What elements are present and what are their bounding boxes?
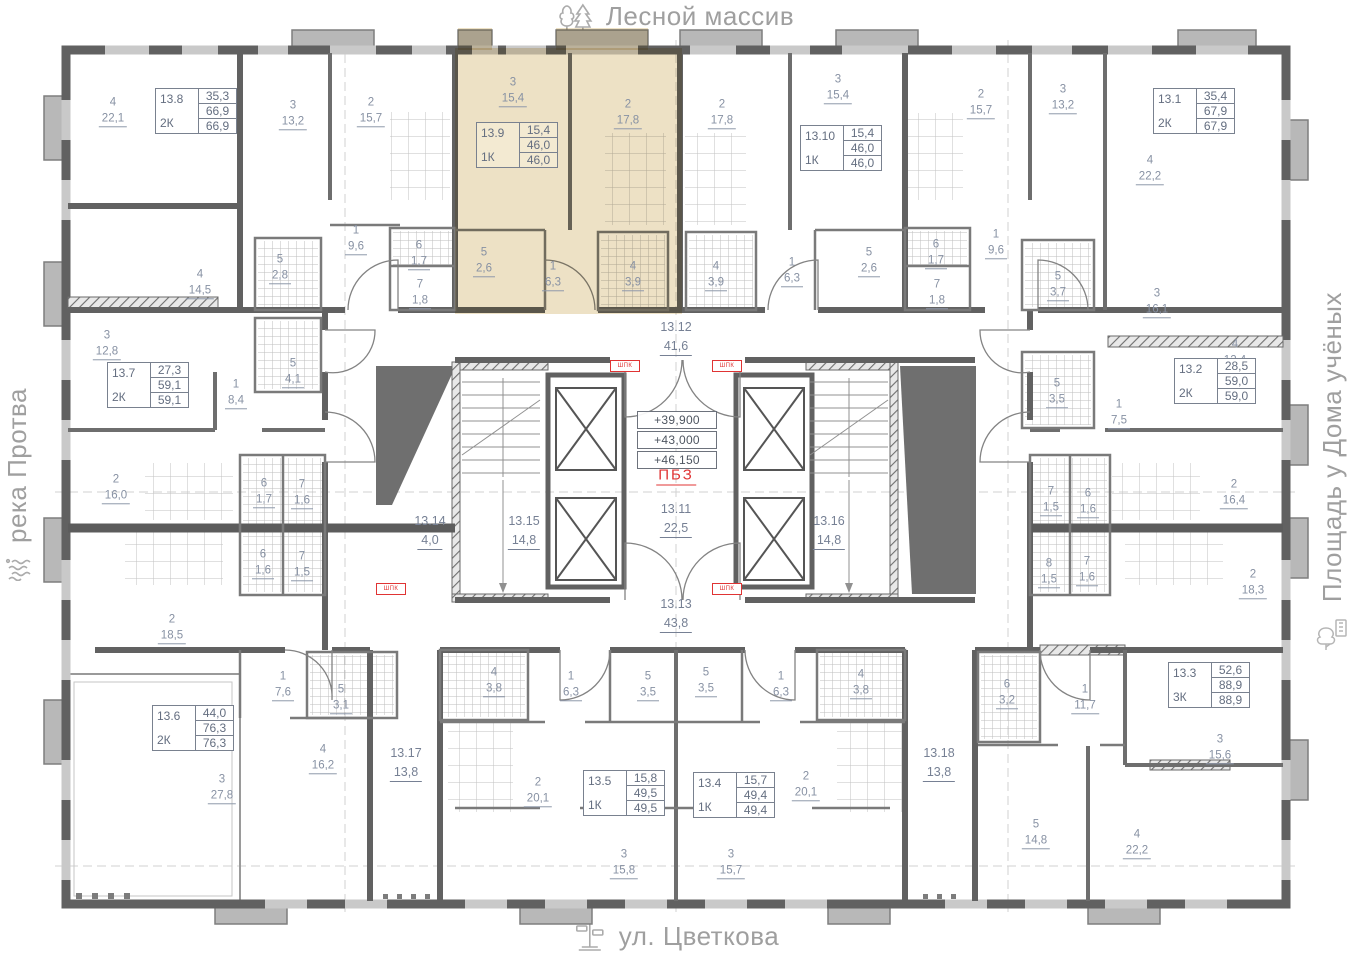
room-label: 1 9,6 (345, 224, 367, 255)
room-number: 4 (705, 260, 727, 273)
room-label: 1 6,3 (770, 670, 792, 701)
corridor-area: 4,0 (417, 533, 442, 550)
room-label: 6 1,7 (925, 238, 947, 269)
apartment-area: 49,4 (737, 788, 774, 803)
room-area: 15,7 (357, 113, 385, 128)
apartment-living-area: 15,8 (627, 771, 664, 786)
apartment-area: 49,5 (627, 786, 664, 801)
room-area: 11,7 (1071, 700, 1099, 715)
room-label: 7 1,5 (291, 550, 313, 581)
room-number: 1 (770, 670, 792, 683)
room-area: 15,4 (824, 90, 852, 105)
room-area: 6,3 (542, 277, 564, 292)
room-area: 18,5 (158, 630, 186, 645)
fire-hose-cabinet-badge: ШПК (610, 360, 640, 372)
apartment-living-area: 15,4 (844, 126, 881, 141)
room-area: 1,5 (1038, 574, 1060, 589)
room-area: 1,7 (925, 255, 947, 270)
corridor-id: 13.16 (813, 514, 845, 529)
room-label: 3 15,7 (717, 848, 745, 879)
room-number: 3 (499, 76, 527, 89)
room-area: 14,5 (186, 285, 214, 300)
room-label: 1 11,7 (1071, 683, 1099, 714)
room-label: 4 22,2 (1123, 828, 1151, 859)
room-area: 3,8 (483, 683, 505, 698)
room-label: 3 16,1 (1143, 287, 1171, 318)
apartment-living-area: 27,3 (151, 363, 188, 378)
room-area: 3,8 (850, 685, 872, 700)
room-area: 1,8 (409, 295, 431, 310)
fire-hose-cabinet-badge: ШПК (376, 583, 406, 595)
apartment-total-area: 66,9 (199, 119, 236, 133)
room-area: 16,2 (309, 760, 337, 775)
apartment-area: 76,3 (196, 721, 233, 736)
room-label: 2 18,5 (158, 613, 186, 644)
room-label: 6 3,2 (996, 678, 1018, 709)
apartment-total-area: 46,0 (520, 153, 557, 167)
corridor-id: 13.14 (414, 514, 445, 529)
room-label: 1 8,4 (225, 378, 247, 409)
fire-hose-cabinet-badge: ШПК (712, 360, 742, 372)
apartment-area: 66,9 (199, 104, 236, 119)
room-area: 2,8 (269, 270, 291, 285)
room-number: 2 (1220, 478, 1248, 491)
room-area: 15,7 (967, 105, 995, 120)
room-label: 7 1,8 (926, 278, 948, 309)
selected-apartment-balcony-highlight (556, 28, 648, 50)
room-label: 1 6,3 (542, 260, 564, 291)
room-number: 1 (560, 670, 582, 683)
room-label: 5 3,5 (637, 670, 659, 701)
room-number: 3 (1206, 733, 1234, 746)
apartment-total-area: 59,0 (1218, 389, 1255, 403)
apartment-id: 13.5 (588, 774, 624, 788)
room-label: 6 1,6 (1077, 487, 1099, 518)
room-label: 4 22,2 (1136, 154, 1164, 185)
room-area: 1,6 (252, 565, 274, 580)
room-area: 15,6 (1206, 750, 1234, 765)
room-label: 2 17,8 (614, 98, 642, 129)
room-label: 4 22,1 (99, 96, 127, 127)
corridor-id: 13.11 (660, 502, 692, 517)
room-number: 6 (1077, 487, 1099, 500)
apartment-info-table[interactable]: 13.6 2К 44,0 76,3 76,3 (152, 705, 234, 751)
apartment-total-area: 88,9 (1212, 693, 1249, 707)
apartment-type: 2К (1158, 116, 1194, 130)
room-label: 2 16,0 (102, 473, 130, 504)
corridor-area: 14,8 (508, 533, 540, 550)
room-label: 2 20,1 (524, 776, 552, 807)
parapet-dots (383, 894, 956, 899)
room-label: 2 15,7 (357, 96, 385, 127)
corridor-area: 13,8 (390, 765, 422, 782)
apartment-id: 13.4 (698, 776, 734, 790)
apartment-living-area: 44,0 (196, 706, 233, 721)
apartment-type: 2К (1179, 386, 1215, 400)
room-number: 5 (330, 683, 352, 696)
apartment-type: 2К (160, 116, 196, 130)
corridor-label: 13.12 41,6 (660, 320, 692, 356)
room-area: 22,1 (99, 113, 127, 128)
room-label: 3 15,4 (824, 73, 852, 104)
corridor-area: 13,8 (923, 765, 955, 782)
room-number: 5 (473, 246, 495, 259)
room-number: 7 (291, 478, 313, 491)
room-number: 6 (253, 477, 275, 490)
room-area: 7,5 (1108, 415, 1130, 430)
room-number: 2 (158, 613, 186, 626)
room-area: 22,2 (1123, 845, 1151, 860)
corridor-label: 13.18 13,8 (923, 746, 955, 782)
corridor-id: 13.12 (660, 320, 692, 335)
room-label: 4 14,5 (186, 268, 214, 299)
room-area: 2,6 (473, 263, 495, 278)
room-label: 5 14,8 (1022, 818, 1050, 849)
room-number: 3 (717, 848, 745, 861)
room-number: 5 (1046, 377, 1068, 390)
apartment-type: 1К (481, 150, 517, 164)
room-label: 3 12,8 (93, 329, 121, 360)
room-label: 1 9,6 (985, 228, 1007, 259)
room-area: 27,8 (208, 790, 236, 805)
room-area: 15,8 (610, 865, 638, 880)
room-label: 2 18,3 (1239, 568, 1267, 599)
room-number: 4 (309, 743, 337, 756)
room-number: 7 (1076, 555, 1098, 568)
apartment-id: 13.8 (160, 92, 196, 106)
apartment-total-area: 59,1 (151, 393, 188, 407)
apartment-area: 59,1 (151, 378, 188, 393)
room-number: 5 (1047, 270, 1069, 283)
corridor-label: 13.17 13,8 (390, 746, 422, 782)
room-area: 17,8 (614, 115, 642, 130)
room-label: 3 27,8 (208, 773, 236, 804)
corridor-label: 13.11 22,5 (660, 502, 692, 538)
selected-apartment-balcony-highlight (458, 28, 492, 50)
room-area: 7,6 (272, 687, 294, 702)
room-area: 20,1 (792, 787, 820, 802)
staircase-right (810, 378, 888, 593)
room-label: 6 1,7 (408, 239, 430, 270)
room-area: 16,4 (1220, 495, 1248, 510)
room-area: 15,7 (717, 865, 745, 880)
room-area: 12,8 (93, 346, 121, 361)
room-number: 4 (483, 666, 505, 679)
room-number: 3 (208, 773, 236, 786)
room-number: 1 (985, 228, 1007, 241)
room-number: 1 (345, 224, 367, 237)
room-number: 1 (542, 260, 564, 273)
corridor-id: 13.15 (508, 514, 540, 529)
room-label: 2 17,8 (708, 98, 736, 129)
apartment-type: 2К (112, 390, 148, 404)
room-area: 17,8 (708, 115, 736, 130)
room-number: 4 (850, 668, 872, 681)
apartment-id: 13.3 (1173, 666, 1209, 680)
staircase-left (462, 378, 540, 593)
room-number: 2 (614, 98, 642, 111)
room-number: 2 (708, 98, 736, 111)
fire-hose-cabinet-label: ШПК (720, 363, 735, 369)
room-number: 5 (858, 246, 880, 259)
room-area: 3,5 (637, 687, 659, 702)
apartment-total-area: 76,3 (196, 736, 233, 750)
corridor-label: 13.16 14,8 (813, 514, 845, 550)
room-number: 7 (1040, 485, 1062, 498)
room-label: 5 3,5 (1046, 377, 1068, 408)
room-number: 3 (824, 73, 852, 86)
room-area: 1,6 (291, 495, 313, 510)
apartment-area: 88,9 (1212, 678, 1249, 693)
room-area: 3,1 (330, 700, 352, 715)
room-area: 9,6 (985, 245, 1007, 260)
room-area: 16,1 (1143, 304, 1171, 319)
room-area: 3,5 (695, 683, 717, 698)
room-label: 3 13,2 (279, 99, 307, 130)
room-number: 7 (291, 550, 313, 563)
room-number: 5 (695, 666, 717, 679)
corridor-area: 14,8 (813, 533, 845, 550)
room-label: 7 1,6 (1076, 555, 1098, 586)
room-label: 1 6,3 (560, 670, 582, 701)
room-label: 3 15,8 (610, 848, 638, 879)
apartment-info-table[interactable]: 13.10 1К 15,4 46,0 46,0 (800, 125, 882, 171)
room-number: 1 (1071, 683, 1099, 696)
apartment-info-table[interactable]: 13.8 2К 35,3 66,9 66,9 (155, 88, 237, 134)
corridor-id: 13.13 (660, 597, 692, 612)
apartment-living-area: 15,7 (737, 773, 774, 788)
apartment-id: 13.2 (1179, 362, 1215, 376)
room-area: 1,6 (1076, 572, 1098, 587)
room-area: 14,8 (1022, 835, 1050, 850)
apartment-info-table[interactable]: 13.5 1К 15,8 49,5 49,5 (583, 770, 665, 816)
apartment-type: 1К (698, 800, 734, 814)
room-label: 5 3,5 (695, 666, 717, 697)
room-area: 3,7 (1047, 287, 1069, 302)
room-area: 18,3 (1239, 585, 1267, 600)
apartment-living-area: 15,4 (520, 123, 557, 138)
corridor-area: 41,6 (660, 339, 692, 356)
apartment-info-table[interactable]: 13.4 1К 15,7 49,4 49,4 (693, 772, 775, 818)
floor-plan: 4 22,1 3 13,2 2 15,7 3 15,4 2 17,8 (0, 0, 1350, 953)
room-number: 2 (967, 88, 995, 101)
room-area: 1,8 (926, 295, 948, 310)
apartment-type: 1К (805, 153, 841, 167)
room-label: 7 1,5 (1040, 485, 1062, 516)
room-number: 3 (1143, 287, 1171, 300)
apartment-info-table[interactable]: 13.2 2К 28,5 59,0 59,0 (1174, 358, 1256, 404)
room-area: 6,3 (770, 687, 792, 702)
room-area: 4,1 (282, 374, 304, 389)
room-area: 6,3 (560, 687, 582, 702)
room-number: 6 (996, 678, 1018, 691)
room-number: 1 (781, 256, 803, 269)
room-number: 1 (1108, 398, 1130, 411)
room-label: 5 2,6 (473, 246, 495, 277)
room-number: 5 (282, 357, 304, 370)
apartment-area: 46,0 (520, 138, 557, 153)
room-area: 3,5 (1046, 394, 1068, 409)
corridor-label: 13.14 4,0 (414, 514, 445, 550)
room-number: 1 (225, 378, 247, 391)
room-area: 22,2 (1136, 171, 1164, 186)
room-label: 5 2,8 (269, 253, 291, 284)
room-label: 7 1,8 (409, 278, 431, 309)
room-label: 4 3,9 (622, 260, 644, 291)
apartment-id: 13.6 (157, 709, 193, 723)
room-number: 3 (279, 99, 307, 112)
corridor-id: 13.17 (390, 746, 422, 761)
apartment-info-table[interactable]: 13.1 2К 35,4 67,9 67,9 (1153, 88, 1235, 134)
room-label: 5 4,1 (282, 357, 304, 388)
room-number: 6 (408, 239, 430, 252)
room-number: 1 (272, 670, 294, 683)
apartment-type: 2К (157, 733, 193, 747)
room-area: 1,5 (1040, 502, 1062, 517)
room-area: 3,9 (622, 277, 644, 292)
apartment-total-area: 49,4 (737, 803, 774, 817)
room-number: 4 (99, 96, 127, 109)
apartment-id: 13.10 (805, 129, 841, 143)
apartment-total-area: 67,9 (1197, 119, 1234, 133)
room-area: 1,7 (253, 494, 275, 509)
room-number: 5 (269, 253, 291, 266)
apartment-info-table[interactable]: 13.3 3К 52,6 88,9 88,9 (1168, 662, 1250, 708)
room-number: 2 (524, 776, 552, 789)
room-number: 5 (637, 670, 659, 683)
room-label: 4 3,9 (705, 260, 727, 291)
apartment-info-table[interactable]: 13.7 2К 27,3 59,1 59,1 (107, 362, 189, 408)
room-area: 20,1 (524, 793, 552, 808)
apartment-area: 46,0 (844, 141, 881, 156)
room-number: 4 (1123, 828, 1151, 841)
room-label: 5 3,1 (330, 683, 352, 714)
room-label: 6 1,7 (253, 477, 275, 508)
room-label: 2 15,7 (967, 88, 995, 119)
room-number: 6 (925, 238, 947, 251)
room-label: 6 1,6 (252, 548, 274, 579)
fire-safety-zone-label: ПБЗ (656, 467, 696, 486)
room-number: 6 (252, 548, 274, 561)
apartment-area: 59,0 (1218, 374, 1255, 389)
room-area: 8,4 (225, 395, 247, 410)
apartment-info-table[interactable]: 13.9 1К 15,4 46,0 46,0 (476, 122, 558, 168)
apartment-total-area: 46,0 (844, 156, 881, 170)
room-number: 3 (93, 329, 121, 342)
room-number: 3 (1049, 83, 1077, 96)
room-area: 3,2 (996, 695, 1018, 710)
apartment-living-area: 35,3 (199, 89, 236, 104)
room-label: 7 1,6 (291, 478, 313, 509)
room-area: 16,0 (102, 490, 130, 505)
room-label: 1 6,3 (781, 256, 803, 287)
apartment-total-area: 49,5 (627, 801, 664, 815)
corridor-label: 13.13 43,8 (660, 597, 692, 633)
apartment-living-area: 52,6 (1212, 663, 1249, 678)
room-area: 3,9 (705, 277, 727, 292)
room-number: 2 (357, 96, 385, 109)
room-label: 3 15,6 (1206, 733, 1234, 764)
elevation-marks: +39,900 +43,000 +46,150 (637, 411, 717, 471)
corridor-label: 13.15 14,8 (508, 514, 540, 550)
room-area: 2,6 (858, 263, 880, 278)
room-area: 9,6 (345, 241, 367, 256)
room-label: 4 16,2 (309, 743, 337, 774)
room-label: 1 7,6 (272, 670, 294, 701)
apartment-type: 3К (1173, 690, 1209, 704)
room-label: 3 13,2 (1049, 83, 1077, 114)
room-label: 4 3,8 (483, 666, 505, 697)
corridor-area: 43,8 (660, 616, 692, 633)
room-label: 5 2,6 (858, 246, 880, 277)
room-number: 4 (622, 260, 644, 273)
room-label: 4 3,8 (850, 668, 872, 699)
room-area: 1,7 (408, 256, 430, 271)
room-area: 6,3 (781, 273, 803, 288)
apartment-id: 13.1 (1158, 92, 1194, 106)
apartment-living-area: 28,5 (1218, 359, 1255, 374)
room-number: 4 (186, 268, 214, 281)
room-number: 3 (610, 848, 638, 861)
apartment-type: 1К (588, 798, 624, 812)
room-number: 5 (1022, 818, 1050, 831)
room-area: 13,2 (1049, 100, 1077, 115)
room-number: 4 (1221, 338, 1249, 351)
room-number: 4 (1136, 154, 1164, 167)
corridor-area: 22,5 (660, 521, 692, 538)
room-number: 8 (1038, 557, 1060, 570)
room-area: 1,5 (291, 567, 313, 582)
apartment-id: 13.9 (481, 126, 517, 140)
room-number: 2 (1239, 568, 1267, 581)
elevation-mark: +43,000 (637, 431, 717, 449)
fire-hose-cabinet-label: ШПК (720, 586, 735, 592)
room-number: 2 (102, 473, 130, 486)
elevation-mark: +39,900 (637, 411, 717, 429)
room-number: 7 (926, 278, 948, 291)
room-area: 13,2 (279, 116, 307, 131)
room-number: 7 (409, 278, 431, 291)
room-label: 2 16,4 (1220, 478, 1248, 509)
fire-hose-cabinet-badge: ШПК (712, 583, 742, 595)
room-label: 2 20,1 (792, 770, 820, 801)
apartment-id: 13.7 (112, 366, 148, 380)
corridor-id: 13.18 (923, 746, 955, 761)
room-label: 5 3,7 (1047, 270, 1069, 301)
room-label: 8 1,5 (1038, 557, 1060, 588)
room-area: 15,4 (499, 93, 527, 108)
apartment-area: 67,9 (1197, 104, 1234, 119)
room-label: 3 15,4 (499, 76, 527, 107)
room-area: 1,6 (1077, 504, 1099, 519)
fire-hose-cabinet-label: ШПК (618, 363, 633, 369)
apartment-living-area: 35,4 (1197, 89, 1234, 104)
room-number: 2 (792, 770, 820, 783)
fire-hose-cabinet-label: ШПК (384, 586, 399, 592)
room-label: 1 7,5 (1108, 398, 1130, 429)
